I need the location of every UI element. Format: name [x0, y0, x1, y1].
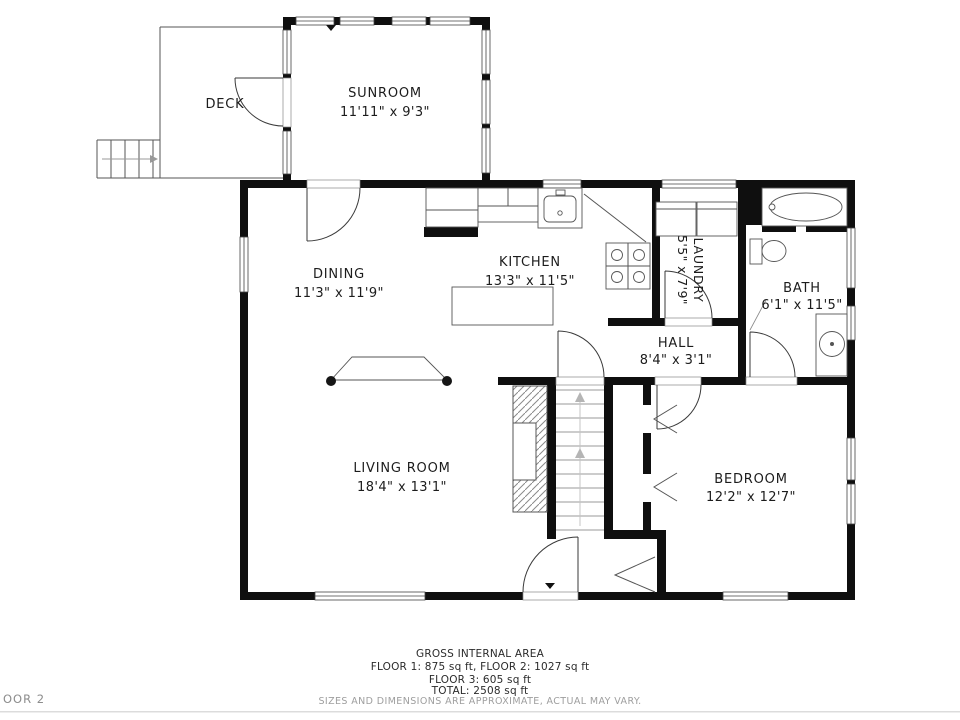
- vanity-sink: [816, 314, 847, 376]
- footer-disclaimer: SIZES AND DIMENSIONS ARE APPROXIMATE, AC…: [318, 696, 641, 707]
- doors: [235, 78, 795, 592]
- sunroom-door-arc: [307, 188, 360, 241]
- hall-dims: 8'4" x 3'1": [640, 353, 713, 368]
- interior-stairs: [556, 390, 604, 530]
- sunroom-label: SUNROOM: [348, 86, 422, 101]
- dining-label: DINING: [313, 267, 365, 282]
- footer: GROSS INTERNAL AREA FLOOR 1: 875 sq ft, …: [318, 648, 641, 707]
- bottom-divider: [0, 711, 960, 713]
- floorplan-svg: DECK SUNROOM 11'11" x 9'3" DINING 11'3" …: [0, 0, 960, 720]
- dining-dims: 11'3" x 11'9": [294, 286, 384, 301]
- deck-outline: [97, 27, 283, 178]
- dryer: [697, 202, 737, 236]
- sunroom-dims: 11'11" x 9'3": [340, 105, 430, 120]
- bath-door-arc: [750, 332, 795, 377]
- kitchen-island: [452, 287, 553, 325]
- deck-label: DECK: [205, 97, 244, 112]
- toilet: [750, 239, 786, 264]
- fireplace-inset: [513, 423, 536, 480]
- hall-label: HALL: [658, 336, 694, 351]
- laundry-label: LAUNDRY: [691, 237, 706, 302]
- bedroom-label: BEDROOM: [714, 472, 787, 487]
- closet-bifold-icon: [654, 473, 677, 501]
- entry-tick: [545, 583, 555, 589]
- kitchen-dims: 13'3" x 11'5": [485, 274, 575, 289]
- bath-label: BATH: [783, 281, 821, 296]
- entry-closet-bifold-icon: [615, 557, 655, 592]
- bath-dims: 6'1" x 11'5": [761, 298, 842, 313]
- door-gaps: [283, 78, 797, 600]
- footer-title: GROSS INTERNAL AREA: [416, 648, 545, 660]
- footer-floors-1-2: FLOOR 1: 875 sq ft, FLOOR 2: 1027 sq ft: [371, 661, 590, 673]
- kitchen-label: KITCHEN: [499, 255, 561, 270]
- kitchen-sink: [538, 188, 582, 228]
- living-room-label: LIVING ROOM: [353, 461, 450, 476]
- laundry-appliances: [656, 202, 737, 236]
- bedroom-door-arc: [657, 385, 701, 429]
- entry-tick: [326, 25, 336, 31]
- stove: [606, 243, 650, 289]
- laundry-dims: 5'5" x 7'9": [675, 235, 690, 305]
- dining-table: [326, 357, 452, 386]
- chimney: [513, 386, 547, 512]
- living-room-dims: 18'4" x 13'1": [357, 480, 447, 495]
- kitchen-counter: [426, 188, 478, 227]
- bedroom-dims: 12'2" x 12'7": [706, 490, 796, 505]
- washer: [656, 202, 696, 236]
- floorplan-page: DECK SUNROOM 11'11" x 9'3" DINING 11'3" …: [0, 0, 960, 720]
- bathtub: [762, 188, 847, 226]
- laundry-label-group: LAUNDRY 5'5" x 7'9": [675, 235, 706, 305]
- stairs-door-arc: [558, 331, 604, 377]
- floor-number-tag: OOR 2: [3, 692, 45, 706]
